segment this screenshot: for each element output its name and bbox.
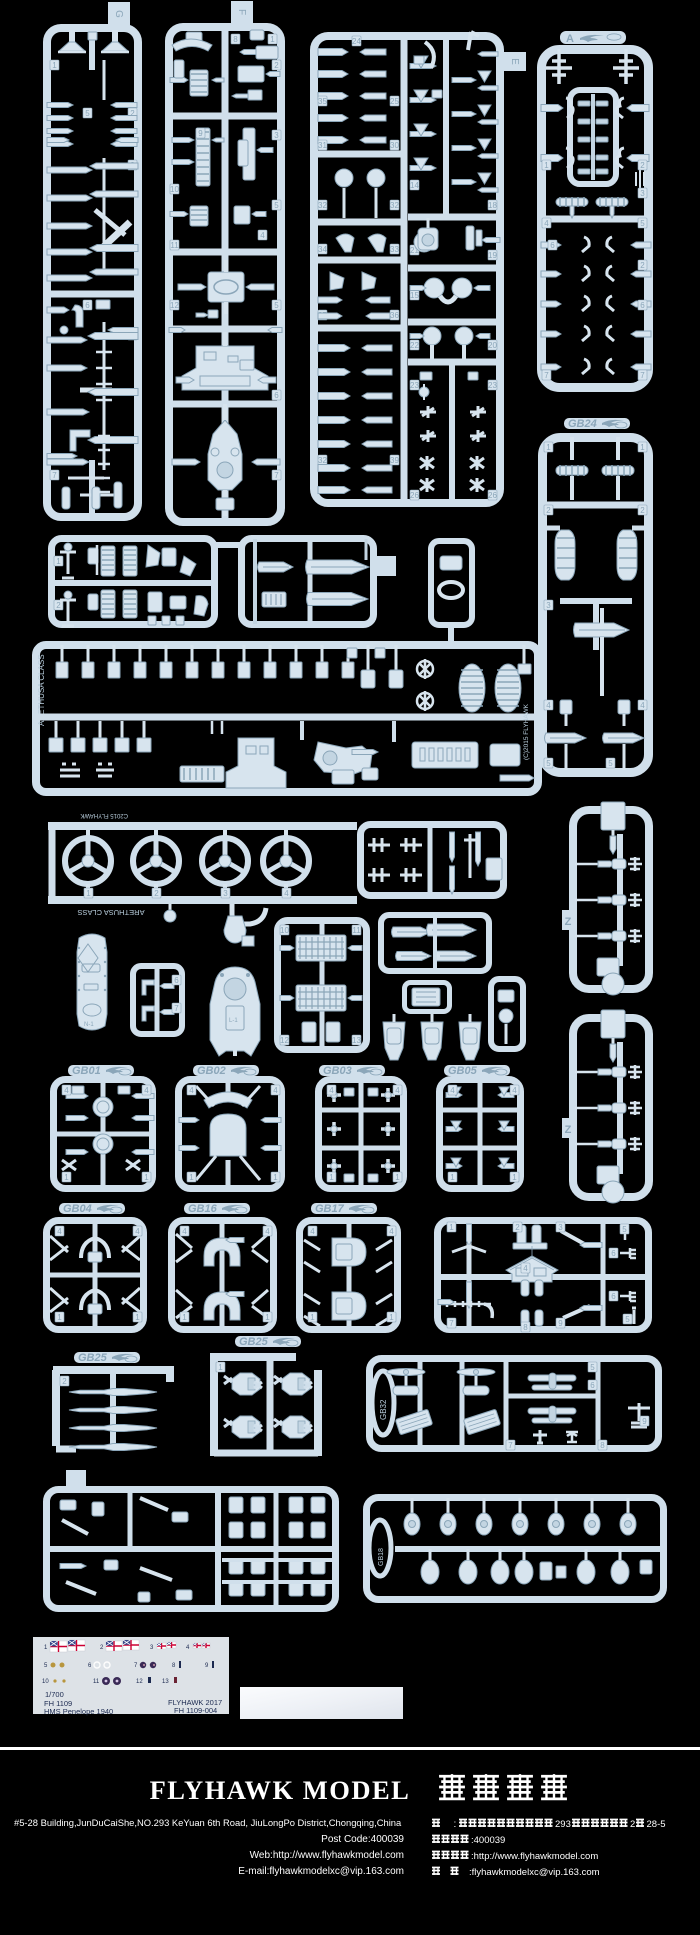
svg-text:1: 1 (218, 1363, 223, 1372)
svg-text:32: 32 (390, 201, 399, 210)
svg-text:4: 4 (450, 1086, 455, 1095)
svg-text:7: 7 (508, 1441, 513, 1450)
svg-text:1: 1 (144, 1173, 149, 1182)
svg-text:5: 5 (622, 1225, 627, 1234)
svg-text:7: 7 (449, 1319, 454, 1328)
svg-text:1: 1 (544, 161, 549, 170)
svg-text:1/700: 1/700 (45, 1690, 64, 1699)
svg-text:11: 11 (93, 1679, 100, 1685)
svg-text:2: 2 (154, 889, 159, 898)
svg-text::flyhawkmodelxc@vip.163.com: :flyhawkmodelxc@vip.163.com (469, 1867, 600, 1878)
svg-text:A: A (566, 33, 574, 45)
svg-text:E: E (509, 58, 520, 65)
svg-text:6: 6 (174, 976, 179, 985)
svg-text:26: 26 (488, 491, 497, 500)
svg-text:4: 4 (135, 1227, 140, 1236)
svg-text:8: 8 (233, 35, 238, 44)
svg-text:4: 4 (260, 231, 265, 240)
svg-text:6: 6 (590, 1381, 595, 1390)
svg-text:4: 4 (284, 889, 289, 898)
svg-text:3: 3 (640, 189, 645, 198)
svg-text:2: 2 (640, 506, 645, 515)
svg-text:6: 6 (85, 301, 90, 310)
svg-text:7: 7 (544, 371, 549, 380)
svg-text:1: 1 (450, 1173, 455, 1182)
svg-text:1: 1 (64, 1173, 69, 1182)
svg-text:2: 2 (640, 261, 645, 270)
svg-text:5: 5 (274, 301, 279, 310)
svg-text:1: 1 (389, 1313, 394, 1322)
svg-text:1: 1 (182, 1313, 187, 1322)
svg-text:2: 2 (630, 1819, 635, 1830)
svg-text:L-1: L-1 (229, 1018, 238, 1024)
svg-text::: : (454, 1819, 457, 1830)
svg-text:7: 7 (174, 1004, 179, 1013)
svg-text:4: 4 (546, 701, 551, 710)
svg-text:5: 5 (625, 1315, 630, 1324)
svg-text:6: 6 (640, 301, 645, 310)
svg-text:Web:http://www.flyhawkmodel.co: Web:http://www.flyhawkmodel.com (250, 1850, 404, 1861)
svg-text:1: 1 (273, 1173, 278, 1182)
svg-text:25: 25 (390, 97, 399, 106)
svg-text:4: 4 (273, 1086, 278, 1095)
svg-text:1: 1 (310, 1313, 315, 1322)
svg-text:GB17: GB17 (315, 1203, 345, 1215)
svg-text::http://www.flyhawkmodel.com: :http://www.flyhawkmodel.com (471, 1851, 598, 1862)
svg-text:12: 12 (136, 1679, 143, 1685)
svg-text:1: 1 (135, 1313, 140, 1322)
svg-text:1: 1 (512, 1173, 517, 1182)
svg-text:5: 5 (590, 1363, 595, 1372)
svg-text:13: 13 (352, 1036, 361, 1045)
svg-text:4: 4 (523, 1264, 528, 1273)
svg-text:4: 4 (640, 701, 645, 710)
svg-text:Post Code:400039: Post Code:400039 (321, 1834, 404, 1845)
svg-text:1: 1 (329, 1173, 334, 1182)
svg-text:5: 5 (85, 109, 90, 118)
svg-text:13: 13 (162, 1679, 169, 1685)
svg-text:34: 34 (318, 245, 327, 254)
svg-text:293: 293 (555, 1819, 571, 1830)
svg-text:5: 5 (608, 759, 613, 768)
svg-text:2: 2 (515, 1223, 520, 1232)
svg-text:7: 7 (640, 371, 645, 380)
svg-text:4: 4 (144, 1086, 149, 1095)
svg-text:GB24: GB24 (568, 418, 597, 430)
svg-text:11: 11 (352, 926, 361, 935)
svg-text:22: 22 (410, 341, 419, 350)
svg-text:28-5: 28-5 (647, 1819, 666, 1830)
svg-text:6: 6 (611, 1292, 616, 1301)
svg-text:8: 8 (600, 1441, 605, 1450)
svg-text:1: 1 (52, 61, 57, 70)
svg-text:GB25: GB25 (78, 1352, 108, 1364)
svg-text:2: 2 (56, 601, 61, 610)
svg-text:9: 9 (642, 1417, 647, 1426)
svg-text:FH 1109-004: FH 1109-004 (174, 1706, 217, 1715)
svg-text:GB05: GB05 (448, 1065, 478, 1077)
svg-text:4: 4 (57, 1227, 62, 1236)
svg-text:1: 1 (546, 443, 551, 452)
svg-text:G: G (113, 10, 124, 18)
svg-text:9: 9 (558, 1319, 563, 1328)
svg-text:HMS Penelope 1940: HMS Penelope 1940 (44, 1707, 113, 1716)
svg-text:23: 23 (410, 381, 419, 390)
svg-text:1: 1 (86, 889, 91, 898)
svg-text:9: 9 (198, 129, 203, 138)
svg-text:24: 24 (352, 37, 361, 46)
svg-text:2: 2 (274, 61, 279, 70)
svg-text:12: 12 (170, 301, 179, 310)
svg-text:2: 2 (640, 161, 645, 170)
svg-text:GB02: GB02 (197, 1065, 226, 1077)
svg-text:3: 3 (546, 601, 551, 610)
svg-text:2: 2 (546, 506, 551, 515)
svg-text:(C)2015 FLYHAWK: (C)2015 FLYHAWK (523, 703, 530, 760)
svg-text:36: 36 (390, 311, 399, 320)
svg-text:GB03: GB03 (323, 1065, 352, 1077)
svg-text:4: 4 (512, 1086, 517, 1095)
svg-text:18: 18 (488, 201, 497, 210)
svg-text:3: 3 (274, 131, 279, 140)
svg-text:31: 31 (318, 141, 327, 150)
svg-text:1: 1 (56, 557, 61, 566)
svg-text:4: 4 (329, 1086, 334, 1095)
svg-text:5: 5 (274, 201, 279, 210)
svg-text:7: 7 (274, 471, 279, 480)
svg-text:32: 32 (318, 456, 327, 465)
svg-text:39: 39 (390, 456, 399, 465)
svg-text:6: 6 (550, 241, 555, 250)
svg-text:8: 8 (523, 1323, 528, 1332)
svg-text:4: 4 (189, 1086, 194, 1095)
svg-text:5: 5 (640, 219, 645, 228)
svg-text:10: 10 (42, 1679, 49, 1685)
svg-text:6: 6 (611, 1249, 616, 1258)
svg-text:4: 4 (310, 1227, 315, 1236)
svg-text:1: 1 (270, 35, 275, 44)
svg-text:20: 20 (488, 341, 497, 350)
svg-text:14: 14 (410, 181, 419, 190)
svg-text:15: 15 (410, 291, 419, 300)
svg-text:35: 35 (318, 97, 327, 106)
svg-text:N-1: N-1 (84, 1022, 94, 1028)
svg-text:4: 4 (182, 1227, 187, 1236)
svg-text:GB04: GB04 (63, 1203, 92, 1215)
svg-text:23: 23 (488, 381, 497, 390)
svg-text:4: 4 (389, 1227, 394, 1236)
svg-text:26: 26 (410, 491, 419, 500)
svg-text::400039: :400039 (471, 1835, 505, 1846)
svg-text:GB32: GB32 (379, 1399, 388, 1420)
svg-text:19: 19 (488, 251, 497, 260)
svg-text:ARETHUSA CLASS: ARETHUSA CLASS (77, 908, 144, 917)
svg-text:4: 4 (395, 1086, 400, 1095)
svg-text:1: 1 (449, 1223, 454, 1232)
svg-text:2: 2 (62, 1377, 67, 1386)
svg-text:10: 10 (280, 926, 289, 935)
svg-text:1: 1 (395, 1173, 400, 1182)
svg-text:3: 3 (223, 889, 228, 898)
svg-text:GB16: GB16 (188, 1203, 218, 1215)
svg-text:Z: Z (565, 916, 572, 928)
svg-text:C2015 FLYHAWK: C2015 FLYHAWK (80, 812, 128, 818)
svg-text:F: F (236, 9, 247, 15)
svg-text:6: 6 (274, 391, 279, 400)
svg-text:4: 4 (544, 219, 549, 228)
svg-text:3: 3 (558, 1223, 563, 1232)
svg-text:1: 1 (640, 443, 645, 452)
svg-text:1: 1 (189, 1173, 194, 1182)
svg-text:E-mail:flyhawkmodelxc@vip.163.: E-mail:flyhawkmodelxc@vip.163.com (238, 1866, 404, 1877)
svg-text:10: 10 (170, 185, 179, 194)
svg-text:4: 4 (265, 1227, 270, 1236)
svg-text:11: 11 (170, 241, 179, 250)
svg-text:Z: Z (565, 1124, 572, 1136)
svg-text:1: 1 (57, 1313, 62, 1322)
svg-text:GB01: GB01 (72, 1065, 101, 1077)
svg-text:5: 5 (546, 759, 551, 768)
svg-text:1: 1 (265, 1313, 270, 1322)
svg-text:#5-28 Building,JunDuCaiShe,NO.: #5-28 Building,JunDuCaiShe,NO.293 KeYuan… (14, 1817, 402, 1828)
svg-text:GB18: GB18 (378, 1548, 385, 1566)
svg-text:30: 30 (390, 141, 399, 150)
svg-text:33: 33 (390, 245, 399, 254)
svg-text:GB25: GB25 (239, 1336, 269, 1348)
svg-text:7: 7 (52, 471, 57, 480)
svg-text:12: 12 (280, 1036, 289, 1045)
svg-text:FLYHAWK MODEL: FLYHAWK MODEL (150, 1775, 411, 1805)
svg-text:4: 4 (64, 1086, 69, 1095)
svg-text:32: 32 (318, 201, 327, 210)
